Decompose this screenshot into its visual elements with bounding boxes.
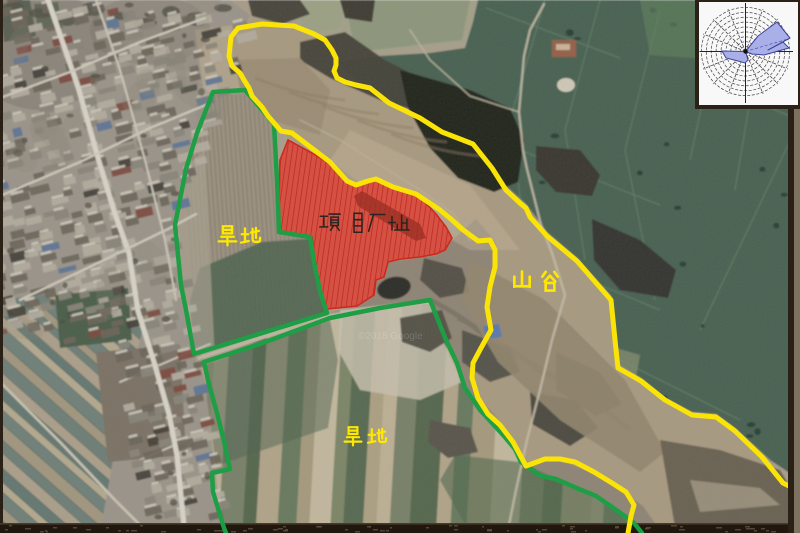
svg-text:©2018 Google: ©2018 Google (358, 331, 423, 342)
